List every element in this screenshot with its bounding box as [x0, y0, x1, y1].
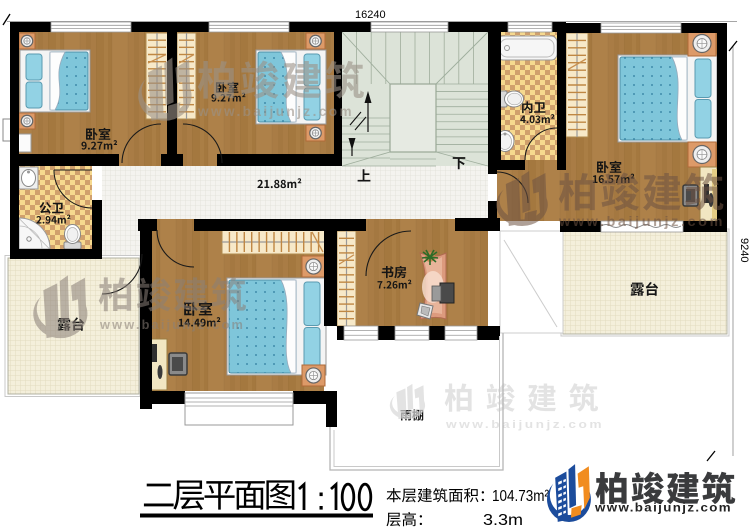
svg-text:www.baijunjz.com: www.baijunjz.com — [99, 317, 245, 332]
svg-text:104.73m²: 104.73m² — [492, 488, 550, 505]
svg-text:16240: 16240 — [355, 9, 386, 21]
svg-text:www.baijunjz.com: www.baijunjz.com — [197, 103, 354, 119]
svg-text:www.baijunjz.com: www.baijunjz.com — [445, 419, 604, 431]
svg-text:www.baijunjz.com: www.baijunjz.com — [594, 503, 732, 515]
svg-text:9240: 9240 — [738, 238, 750, 262]
svg-text:3.3m: 3.3m — [483, 512, 523, 529]
svg-text:www.baijunjz.com: www.baijunjz.com — [558, 213, 725, 229]
